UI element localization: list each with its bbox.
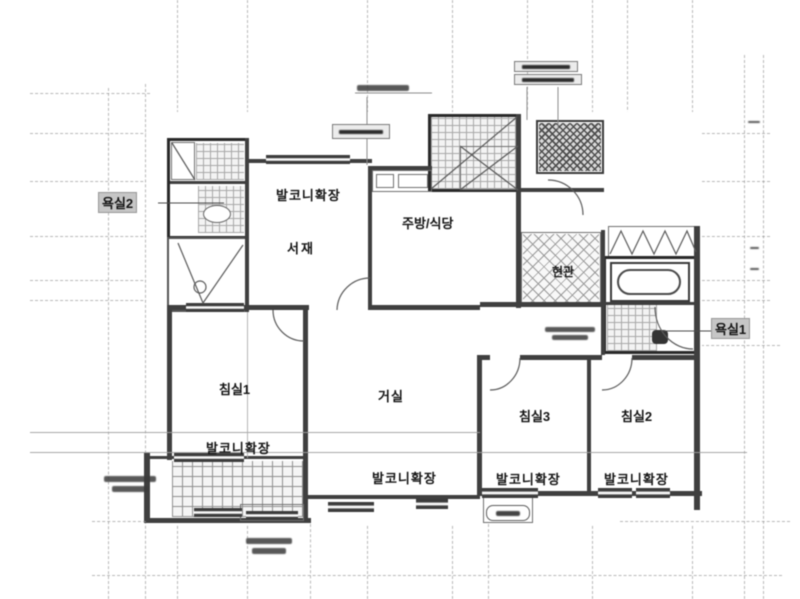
room-label-bath1: 욕실1 [711, 318, 750, 339]
gridline-vertical-bottom-a [310, 524, 311, 599]
annotation-left-line2 [112, 486, 148, 492]
door-arc-study [337, 278, 370, 310]
door-arc-bed2 [602, 358, 632, 390]
room-label-balcony-living: 발코니확장 [372, 468, 437, 487]
gridline-vertical-bottom-b [488, 524, 489, 599]
stair-diagonal-a [431, 117, 517, 189]
room-label-bed1: 침실1 [219, 379, 250, 398]
room-label-entrance: 현관 [552, 263, 574, 280]
gridline-horizontal-bottom-a [92, 521, 146, 522]
stamp-label [486, 505, 530, 521]
room-label-balcony-study: 발코니확장 [276, 185, 341, 204]
annotation-hall-line1 [545, 327, 595, 332]
annotation-bottom-line2 [252, 548, 286, 554]
annotation-dim-top [357, 85, 409, 91]
gridline-horizontal-bottom-b [620, 521, 790, 522]
room-label-kitchen: 주방/식당 [402, 213, 453, 232]
annotation-bottom-line1 [246, 538, 292, 544]
dressroom-bifold-doors [178, 243, 243, 303]
room-label-study: 서재 [287, 238, 315, 257]
mark-right-b [750, 268, 759, 270]
annotation-hall-line2 [552, 335, 588, 340]
door-arc-corridor [548, 180, 583, 215]
annotation-box-top-b [514, 74, 582, 85]
door-arc-bed3 [490, 358, 520, 390]
room-label-living: 거실 [378, 386, 404, 405]
annotation-box-kitchen [332, 124, 390, 139]
annotation-box-top-a [514, 61, 578, 72]
centerline-h-bedrooms [30, 452, 747, 453]
room-label-bath2: 욕실2 [98, 192, 137, 213]
room-label-bed2: 침실2 [621, 406, 652, 425]
closet-zigzag [610, 231, 696, 254]
room-label-balcony-bed3: 발코니확장 [496, 469, 561, 488]
room-label-balcony-bed2: 발코니확장 [604, 469, 669, 488]
bath2-washstand-diagonal [172, 143, 195, 180]
centerline-h-bed1 [30, 432, 480, 433]
mark-top-right [748, 121, 760, 123]
door-arc-bath1 [655, 307, 693, 349]
gridline-horizontal-bottom-c [92, 575, 782, 576]
apartment-floor-plan: 욕실2 발코니확장 서재 주방/식당 현관 욕실1 침실1 거실 침실3 침실2… [0, 0, 800, 599]
annotation-left-line1 [104, 476, 156, 482]
room-label-balcony-bed1: 발코니확장 [206, 438, 271, 457]
floor-plan-screenshot: 욕실2 발코니확장 서재 주방/식당 현관 욕실1 침실1 거실 침실3 침실2… [0, 0, 800, 599]
mark-right-a [750, 247, 759, 249]
room-label-bed3: 침실3 [519, 406, 550, 425]
door-arc-bed1 [273, 310, 304, 341]
